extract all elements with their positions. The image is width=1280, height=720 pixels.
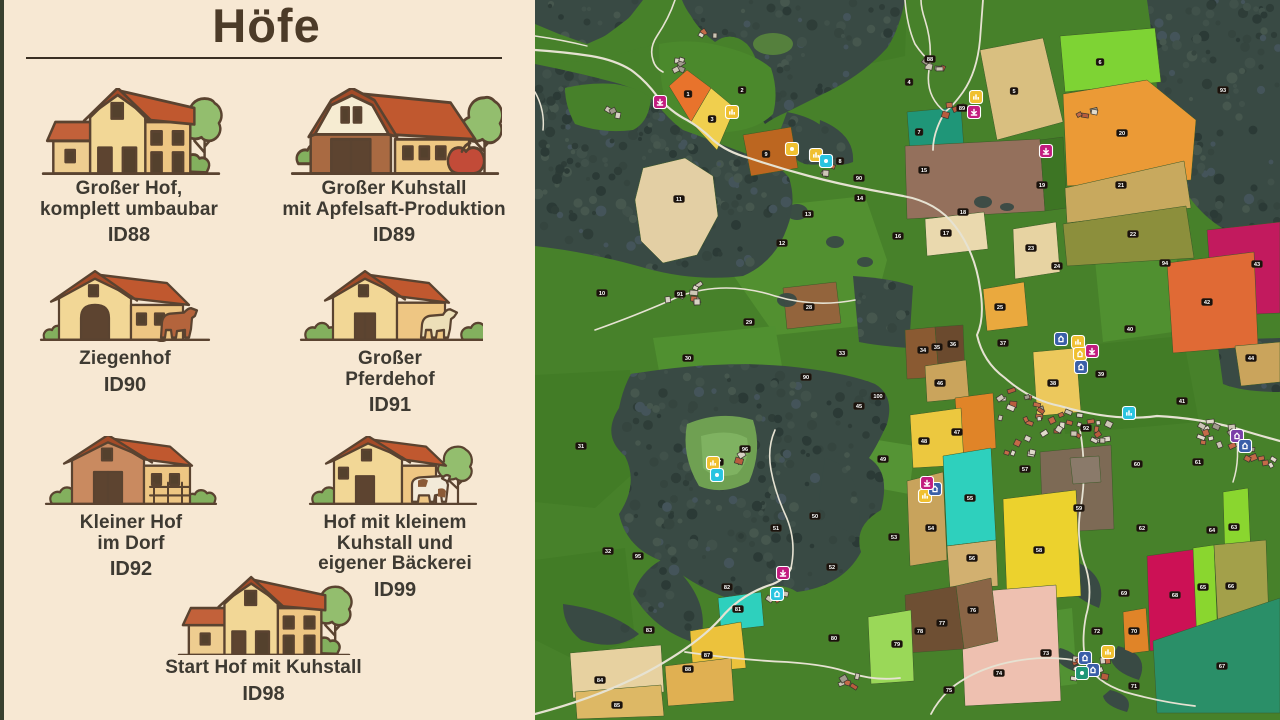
svg-text:62: 62 — [1139, 526, 1145, 532]
svg-text:18: 18 — [960, 210, 966, 216]
svg-text:50: 50 — [812, 514, 818, 520]
svg-text:16: 16 — [895, 234, 901, 240]
svg-text:93: 93 — [1220, 88, 1226, 94]
svg-text:90: 90 — [803, 375, 809, 381]
svg-text:65: 65 — [1200, 585, 1206, 591]
svg-text:37: 37 — [1000, 341, 1006, 347]
svg-text:58: 58 — [1036, 548, 1042, 554]
svg-text:61: 61 — [1195, 460, 1201, 466]
svg-text:42: 42 — [1204, 300, 1210, 306]
svg-text:30: 30 — [685, 356, 691, 362]
svg-text:39: 39 — [1098, 372, 1104, 378]
svg-text:38: 38 — [1050, 381, 1056, 387]
svg-text:13: 13 — [805, 212, 811, 218]
svg-text:78: 78 — [917, 629, 923, 635]
svg-text:71: 71 — [1131, 684, 1137, 690]
svg-text:49: 49 — [880, 457, 886, 463]
svg-text:52: 52 — [829, 565, 835, 571]
svg-text:2: 2 — [740, 88, 743, 94]
svg-text:64: 64 — [1209, 528, 1216, 534]
svg-text:6: 6 — [1098, 60, 1101, 66]
svg-text:94: 94 — [1162, 261, 1169, 267]
svg-text:20: 20 — [1119, 131, 1125, 137]
svg-text:36: 36 — [950, 342, 956, 348]
svg-text:95: 95 — [635, 554, 641, 560]
svg-text:59: 59 — [1076, 506, 1082, 512]
svg-text:63: 63 — [1231, 525, 1237, 531]
svg-text:8: 8 — [838, 159, 841, 165]
svg-text:55: 55 — [967, 496, 973, 502]
svg-text:40: 40 — [1127, 327, 1133, 333]
svg-text:73: 73 — [1043, 651, 1049, 657]
svg-text:7: 7 — [917, 130, 920, 136]
svg-text:34: 34 — [920, 348, 927, 354]
svg-text:83: 83 — [646, 628, 652, 634]
svg-text:96: 96 — [742, 447, 748, 453]
svg-text:51: 51 — [773, 526, 779, 532]
svg-text:56: 56 — [969, 556, 975, 562]
svg-text:9: 9 — [764, 152, 767, 158]
svg-text:53: 53 — [891, 535, 897, 541]
svg-text:81: 81 — [735, 607, 741, 613]
svg-text:90: 90 — [856, 176, 862, 182]
svg-text:29: 29 — [746, 320, 752, 326]
svg-text:31: 31 — [578, 444, 584, 450]
svg-text:5: 5 — [1012, 89, 1015, 95]
svg-text:74: 74 — [996, 671, 1003, 677]
svg-text:88: 88 — [927, 57, 933, 63]
svg-text:17: 17 — [943, 231, 949, 237]
svg-text:87: 87 — [704, 653, 710, 659]
svg-text:76: 76 — [970, 608, 976, 614]
svg-text:66: 66 — [1228, 584, 1234, 590]
svg-text:44: 44 — [1248, 356, 1255, 362]
svg-text:82: 82 — [724, 585, 730, 591]
svg-text:100: 100 — [873, 394, 882, 400]
svg-text:77: 77 — [939, 621, 945, 627]
svg-text:88: 88 — [685, 667, 691, 673]
svg-text:41: 41 — [1179, 399, 1185, 405]
svg-text:75: 75 — [946, 688, 952, 694]
svg-text:1: 1 — [686, 92, 689, 98]
svg-text:35: 35 — [934, 345, 940, 351]
svg-text:85: 85 — [614, 703, 620, 709]
svg-text:79: 79 — [894, 642, 900, 648]
svg-text:25: 25 — [997, 305, 1003, 311]
svg-text:14: 14 — [857, 196, 864, 202]
svg-text:48: 48 — [921, 439, 927, 445]
svg-text:10: 10 — [599, 291, 605, 297]
svg-text:45: 45 — [856, 404, 862, 410]
svg-text:84: 84 — [597, 678, 604, 684]
svg-text:15: 15 — [921, 168, 927, 174]
svg-text:24: 24 — [1054, 264, 1061, 270]
svg-text:11: 11 — [676, 197, 682, 203]
svg-text:33: 33 — [839, 351, 845, 357]
svg-text:21: 21 — [1118, 183, 1124, 189]
svg-text:3: 3 — [710, 117, 713, 123]
svg-text:23: 23 — [1028, 246, 1034, 252]
svg-text:43: 43 — [1254, 262, 1260, 268]
svg-text:67: 67 — [1219, 664, 1225, 670]
svg-text:60: 60 — [1134, 462, 1140, 468]
svg-text:80: 80 — [831, 636, 837, 642]
svg-text:28: 28 — [806, 305, 812, 311]
svg-text:47: 47 — [954, 430, 960, 436]
svg-text:57: 57 — [1022, 467, 1028, 473]
svg-text:69: 69 — [1121, 591, 1127, 597]
svg-text:54: 54 — [928, 526, 935, 532]
svg-text:92: 92 — [1083, 426, 1089, 432]
svg-text:12: 12 — [779, 241, 785, 247]
svg-text:89: 89 — [959, 106, 965, 112]
svg-text:32: 32 — [605, 549, 611, 555]
svg-text:91: 91 — [677, 292, 683, 298]
svg-text:72: 72 — [1094, 629, 1100, 635]
svg-text:19: 19 — [1039, 183, 1045, 189]
svg-text:70: 70 — [1131, 629, 1137, 635]
svg-text:68: 68 — [1172, 593, 1178, 599]
svg-text:22: 22 — [1130, 232, 1136, 238]
svg-text:46: 46 — [937, 381, 943, 387]
